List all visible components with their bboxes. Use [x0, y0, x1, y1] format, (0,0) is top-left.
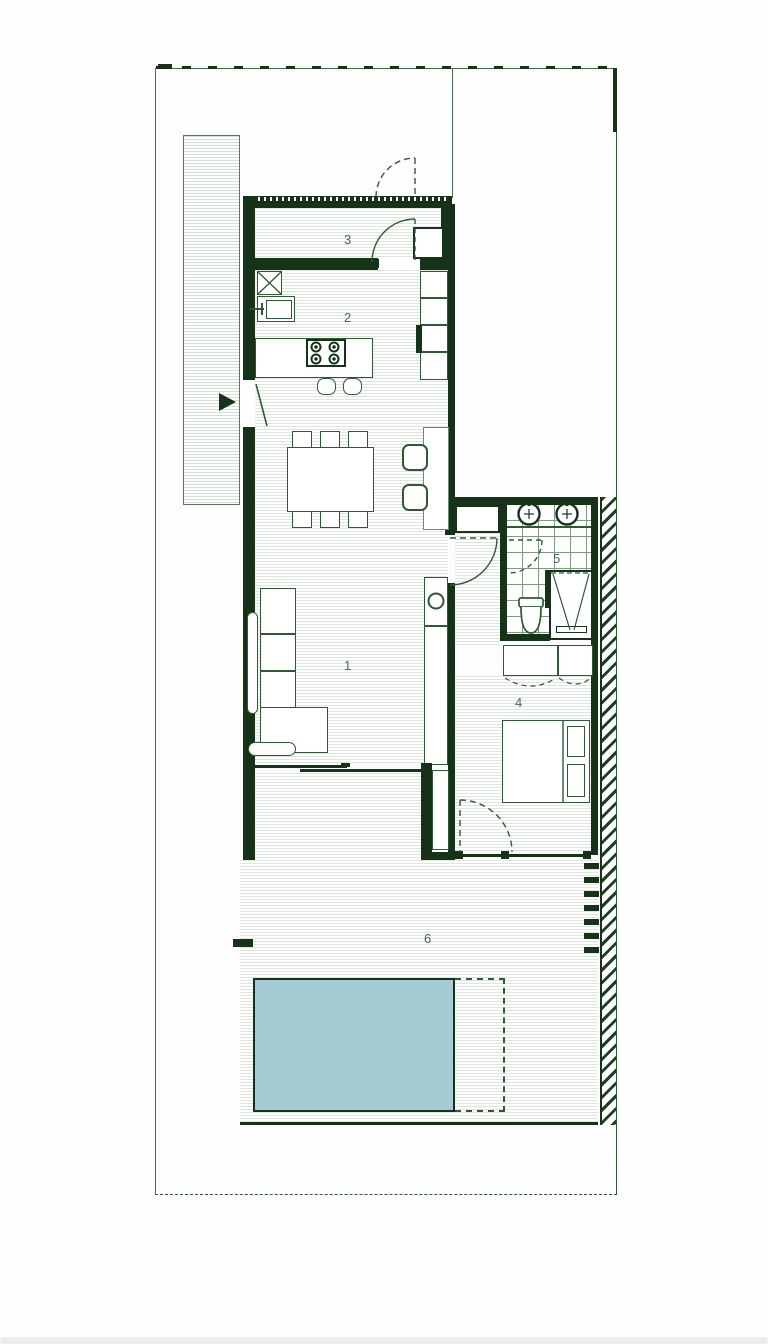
- boundary-top-dashes: [156, 66, 616, 69]
- desk-chair: [402, 484, 428, 511]
- room-label-terrace: 6: [424, 932, 431, 946]
- room3-top-wall-hatch: [246, 197, 450, 201]
- room-label-bathroom: 5: [553, 552, 560, 566]
- wall-cabinet: [420, 298, 448, 325]
- cabinet-handle: [416, 325, 422, 353]
- shower-drain: [556, 626, 587, 633]
- pillow: [567, 764, 585, 797]
- dining-chair: [320, 511, 340, 528]
- sofa-seat-divider: [261, 670, 295, 672]
- swimming-pool: [253, 978, 455, 1112]
- sofa-back-cushion: [247, 612, 258, 714]
- washbasin-counter-edge: [507, 526, 591, 528]
- living-sliding-door-track-b: [300, 769, 421, 772]
- bathroom-west-wall: [500, 505, 507, 641]
- bathroom-south-wall: [500, 634, 550, 641]
- hallway-floor: [455, 533, 500, 645]
- pool-deck-extension: [455, 978, 505, 1112]
- sliding-door-handle: [341, 763, 350, 767]
- wall-cabinet: [420, 325, 448, 352]
- kitchen-sink-basin: [266, 300, 292, 319]
- room-label-kitchen: 2: [344, 311, 351, 325]
- boundary-corner-tick: [158, 64, 172, 69]
- pillow: [567, 726, 585, 757]
- boundary-right-accent: [613, 68, 617, 132]
- tv-column-divider: [425, 625, 447, 627]
- fence-dash: [584, 877, 599, 883]
- slider-stop: [455, 851, 463, 859]
- floor-plan-canvas: 1 2 3 4 5 6: [0, 0, 768, 1344]
- sofa-arm-cushion: [248, 742, 296, 756]
- desk: [423, 427, 449, 530]
- bedroom-sliding-door-track: [455, 854, 591, 857]
- east-wall-lower: [448, 585, 455, 862]
- west-wall: [243, 270, 255, 860]
- dining-chair: [292, 511, 312, 528]
- survey-line: [452, 69, 453, 198]
- cooktop: [306, 339, 346, 367]
- bath-block-north-wall: [455, 497, 598, 505]
- entry-opening: [243, 380, 255, 427]
- vent-shaft: [257, 271, 282, 295]
- fence-dash: [584, 947, 599, 953]
- wall-cabinet: [420, 352, 448, 380]
- dining-chair: [292, 431, 312, 448]
- bed-pillow-line: [562, 721, 564, 802]
- bath-block-east-wall: [591, 497, 598, 855]
- dining-table: [287, 447, 374, 512]
- slider-stop: [501, 851, 509, 859]
- room3-door-jamb: [369, 259, 379, 268]
- room-label-entry: 3: [344, 233, 351, 247]
- hall-closet: [455, 505, 500, 533]
- terrace-south-edge: [240, 1122, 598, 1125]
- east-wall-upper: [448, 270, 455, 533]
- hatched-party-wall: [600, 497, 617, 1125]
- bar-stool: [317, 378, 336, 395]
- wardrobe-divider: [557, 646, 559, 675]
- driveway-strip: [183, 135, 240, 505]
- fence-dash: [584, 905, 599, 911]
- shower-door-jamb: [545, 570, 551, 608]
- partition-post: [421, 763, 432, 862]
- sofa-seat-divider: [261, 633, 295, 635]
- fence-dash: [584, 863, 599, 869]
- room-label-living: 1: [344, 659, 351, 673]
- wardrobe: [503, 645, 593, 676]
- room-label-bedroom: 4: [515, 696, 522, 710]
- fence-dash: [584, 891, 599, 897]
- slider-stop: [583, 851, 591, 859]
- dining-chair: [320, 431, 340, 448]
- covered-terrace-floor: [255, 773, 423, 860]
- bottom-strip: [0, 1337, 768, 1344]
- tv-column: [424, 577, 448, 765]
- pocket-door-panel: [432, 770, 449, 850]
- dining-chair: [348, 431, 368, 448]
- room3-fixture-box: [413, 227, 444, 259]
- room3-door-opening: [378, 258, 420, 270]
- dining-chair: [348, 511, 368, 528]
- desk-chair: [402, 444, 428, 471]
- room3-bottom-wall: [243, 258, 455, 270]
- living-sliding-door-track-a: [255, 765, 347, 768]
- wall-cabinet: [420, 271, 448, 298]
- bar-stool: [343, 378, 362, 395]
- fence-dash: [584, 933, 599, 939]
- fence-dash: [584, 919, 599, 925]
- terrace-left-marker: [233, 939, 253, 947]
